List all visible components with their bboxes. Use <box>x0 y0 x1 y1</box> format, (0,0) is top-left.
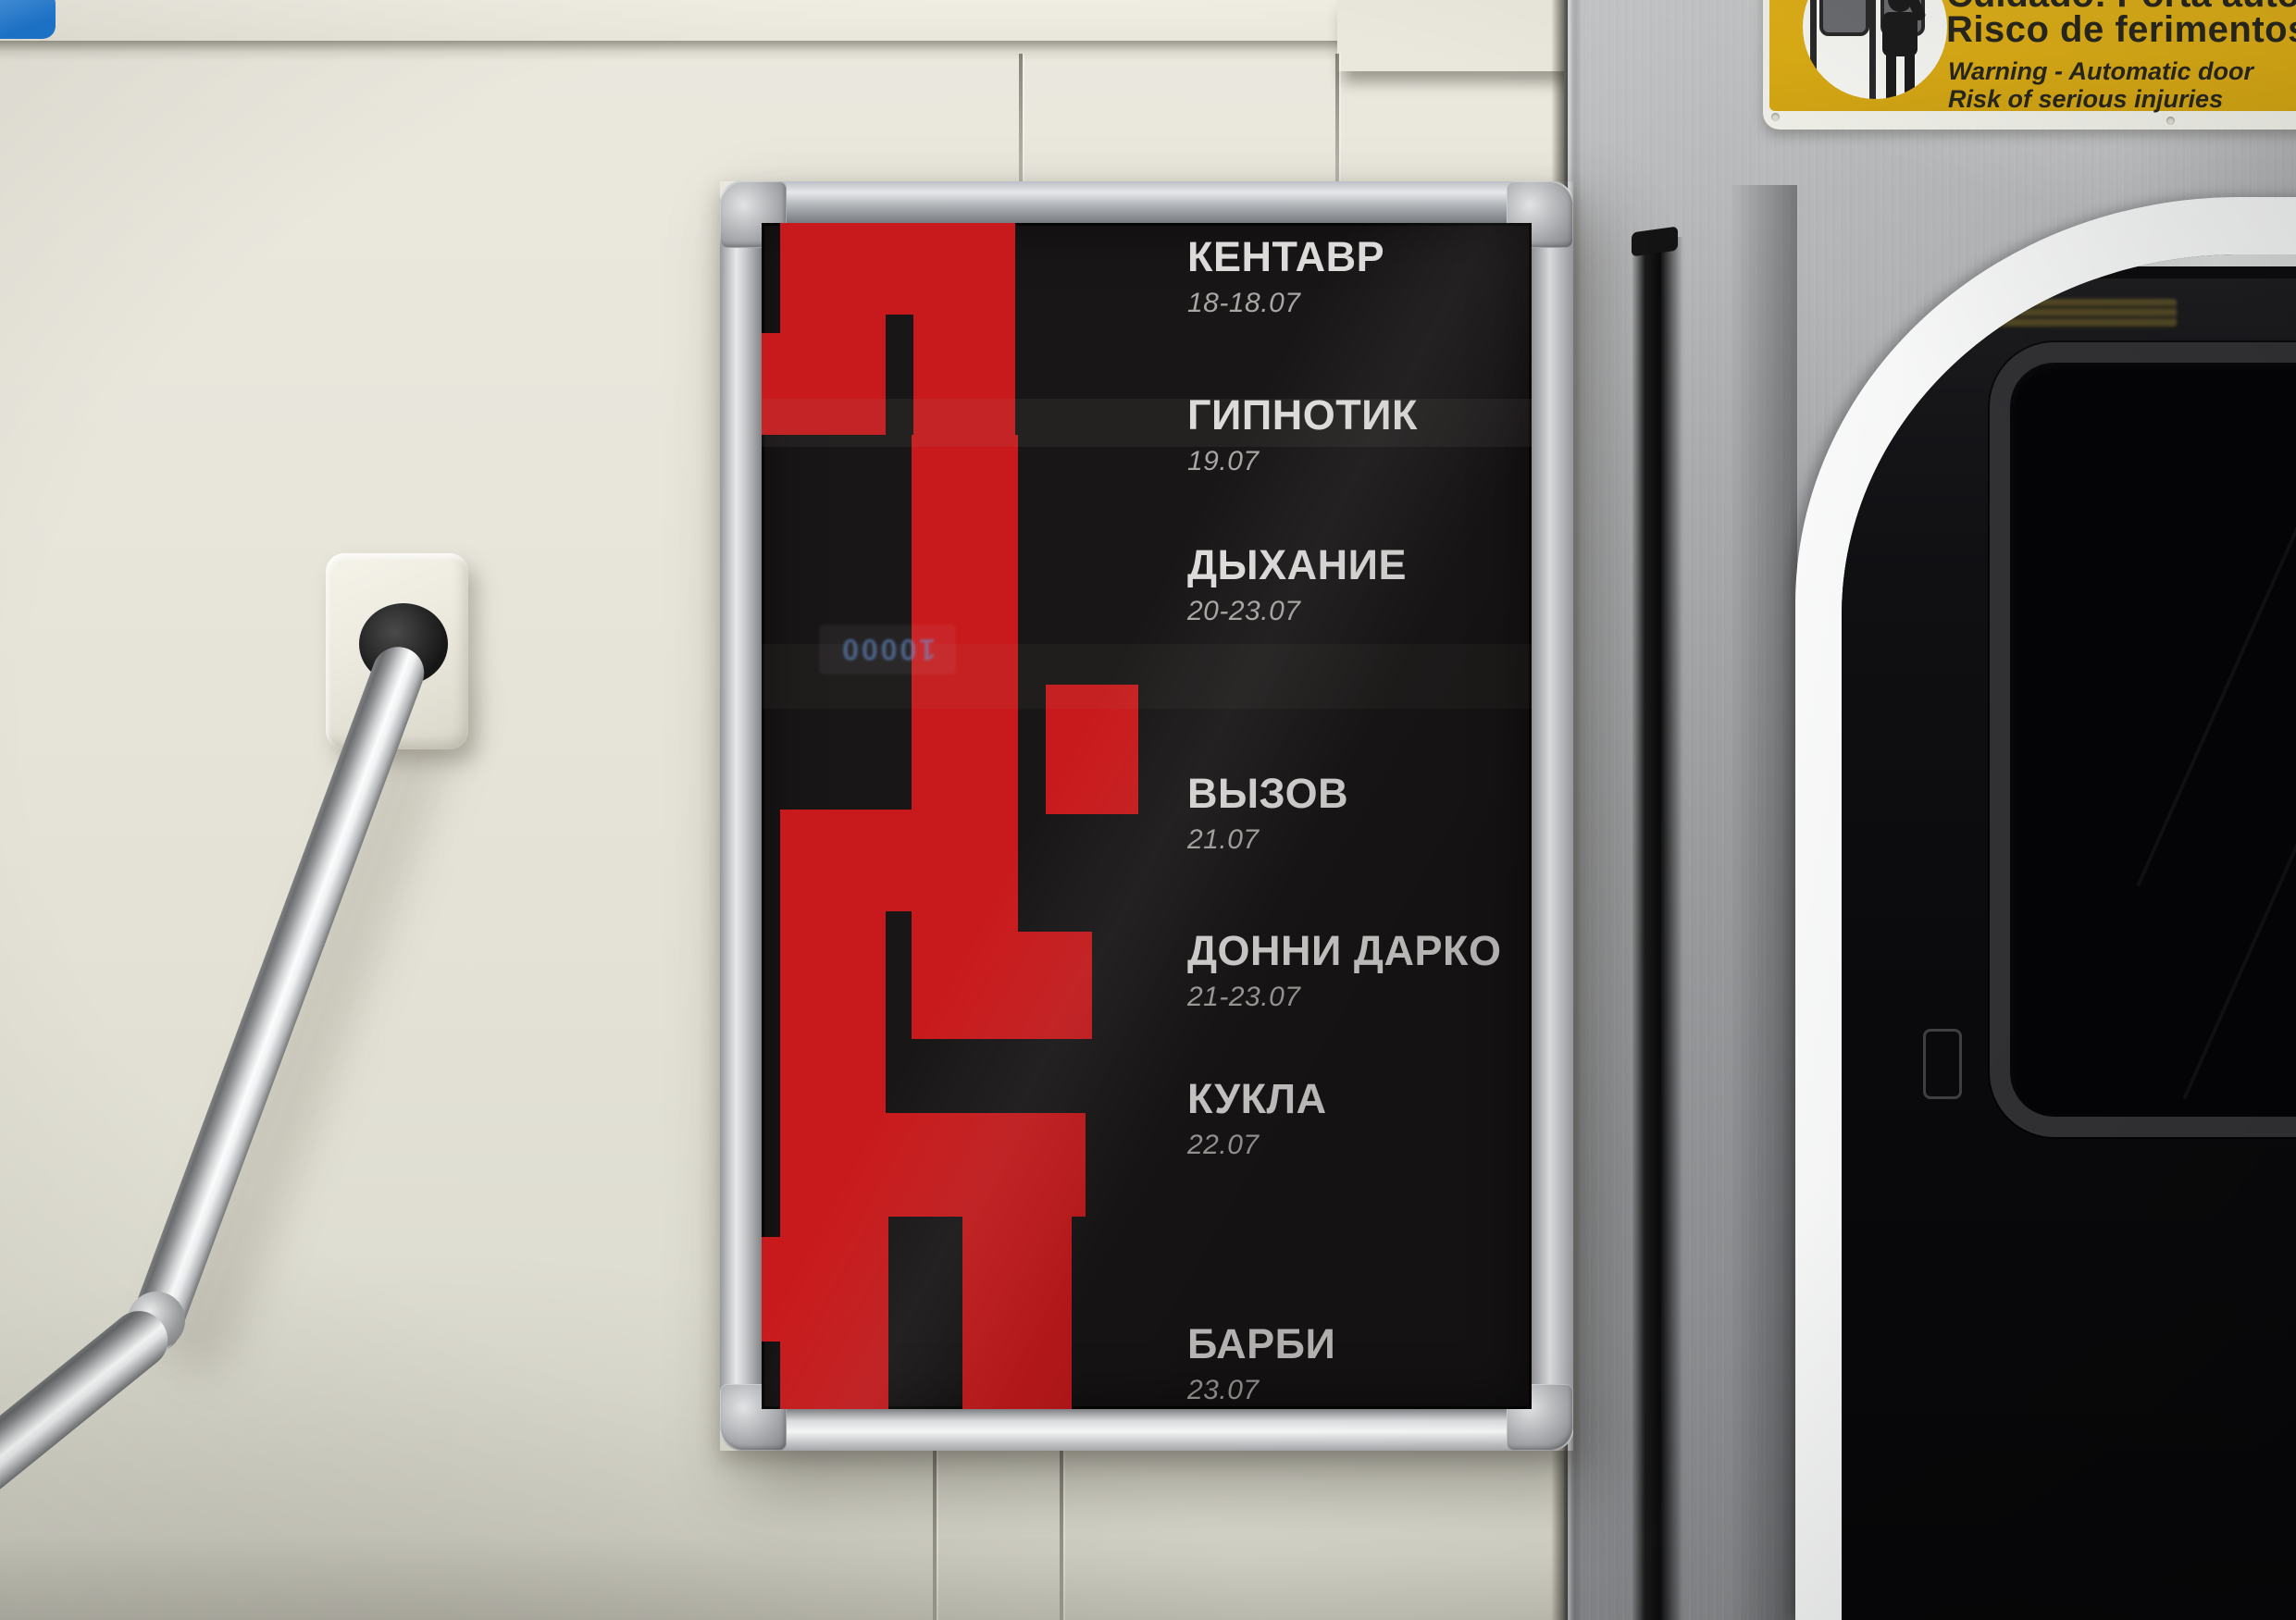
sticker-rivet <box>2166 117 2175 125</box>
pictogram-pole <box>1810 0 1817 99</box>
warning-line-pt-2: Risco de ferimentos <box>1946 9 2296 51</box>
frame-bar-right <box>1531 181 1573 1451</box>
pictogram-person-body <box>1882 12 1917 56</box>
door-frame <box>1795 197 2296 1620</box>
warning-line-en-1: Warning - Automatic door <box>1948 57 2253 86</box>
pillar-shadow <box>1729 185 1797 1620</box>
sticker-rivet <box>1771 113 1780 121</box>
frame-bar-bottom <box>720 1408 1573 1451</box>
pictogram-door-left <box>1819 0 1869 36</box>
door-rubber-seal <box>1632 237 1683 1620</box>
door-handle-recess <box>1923 1029 1962 1099</box>
pictogram-person-leg <box>1905 55 1915 99</box>
warning-sticker: ✱ Cuidado! Porta automática Risco de fer… <box>1763 0 2296 130</box>
sticker-reflection <box>1959 299 2177 328</box>
frame-bar-left <box>720 181 763 1451</box>
blue-sticker-fragment <box>0 0 56 39</box>
pictogram-door-gap <box>1869 0 1876 99</box>
automatic-door[interactable] <box>1842 254 2296 1620</box>
glass-streak <box>2136 412 2296 886</box>
wall-seam <box>1019 54 1023 183</box>
pictogram-person-leg <box>1886 55 1896 99</box>
door-window <box>1990 342 2296 1137</box>
warning-line-en-2: Risk of serious injuries <box>1948 85 2223 114</box>
poster-frame: 10000 КЕНТАВР 18-18.07 ГИПНОТИК 19.07 ДЫ… <box>720 181 1573 1451</box>
wall-seam <box>1335 54 1339 183</box>
glass-sheen <box>762 223 1532 1409</box>
frame-bar-top <box>720 181 1573 224</box>
film-schedule-poster[interactable]: 10000 КЕНТАВР 18-18.07 ГИПНОТИК 19.07 ДЫ… <box>762 223 1532 1409</box>
glass-streak <box>2182 625 2296 1099</box>
wall-bottom-shadow <box>0 1536 1564 1620</box>
metro-interior-photo: { "scene": { "description": "Metro train… <box>0 0 2296 1620</box>
door-top-edge-highlight <box>1869 254 2296 266</box>
